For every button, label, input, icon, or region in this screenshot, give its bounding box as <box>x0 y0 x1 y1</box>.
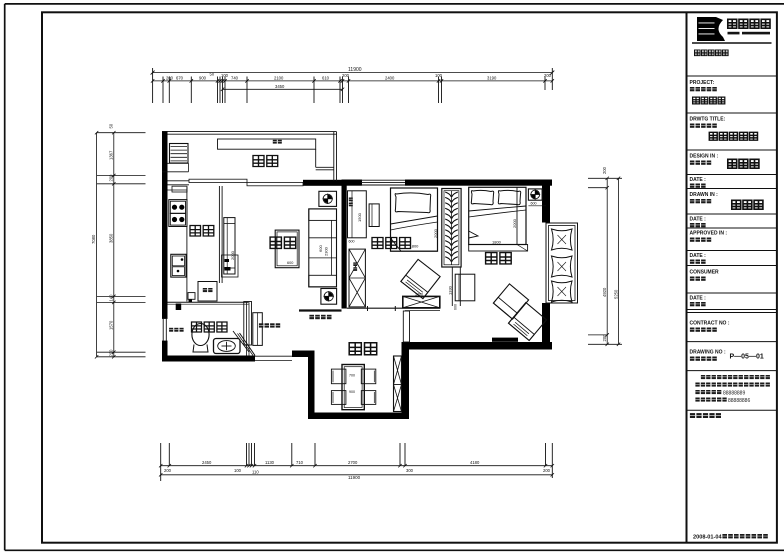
svg-text:100: 100 <box>221 73 229 78</box>
svg-text:610: 610 <box>322 75 330 80</box>
svg-text:2450: 2450 <box>202 460 212 465</box>
svg-text:7080: 7080 <box>91 234 96 244</box>
svg-text:DRWTG TITLE:: DRWTG TITLE: <box>690 117 726 123</box>
svg-text:PROJECT:: PROJECT: <box>690 80 715 86</box>
svg-text:88888889: 88888889 <box>723 390 745 396</box>
svg-text:200: 200 <box>602 334 607 342</box>
svg-text:110: 110 <box>252 470 259 475</box>
svg-text:11900: 11900 <box>348 475 361 480</box>
svg-text:1570: 1570 <box>108 320 113 330</box>
svg-text:140: 140 <box>108 294 113 302</box>
svg-text:600: 600 <box>349 240 355 244</box>
svg-text:200: 200 <box>108 174 113 182</box>
svg-text:1330: 1330 <box>447 285 452 295</box>
svg-text:100: 100 <box>435 73 443 78</box>
svg-text:1400: 1400 <box>415 292 423 296</box>
svg-text:1500: 1500 <box>357 212 362 222</box>
svg-text:670: 670 <box>176 75 184 80</box>
svg-text:5250: 5250 <box>614 289 619 299</box>
svg-text:3450: 3450 <box>275 84 285 89</box>
svg-text:P—05—01: P—05—01 <box>730 354 764 361</box>
svg-text:88888886: 88888886 <box>728 398 750 404</box>
svg-text:DATE :: DATE : <box>690 177 707 183</box>
svg-text:900: 900 <box>199 75 207 80</box>
svg-text:CONTRACT NO :: CONTRACT NO : <box>690 321 730 327</box>
svg-text:1130: 1130 <box>265 460 275 465</box>
svg-text:2000: 2000 <box>433 228 438 238</box>
svg-text:600: 600 <box>287 261 293 265</box>
svg-text:710: 710 <box>296 460 304 465</box>
svg-text:600: 600 <box>531 202 537 206</box>
svg-text:2700: 2700 <box>348 460 358 465</box>
svg-text:900: 900 <box>349 390 355 394</box>
svg-text:3190: 3190 <box>487 75 497 80</box>
svg-text:2400: 2400 <box>385 75 395 80</box>
svg-text:DRAWN IN :: DRAWN IN : <box>690 192 719 198</box>
svg-text:DRAWING NO :: DRAWING NO : <box>690 350 726 356</box>
svg-text:50: 50 <box>108 123 113 128</box>
svg-text:2300: 2300 <box>324 246 329 256</box>
svg-text:600: 600 <box>318 245 323 252</box>
svg-text:3850: 3850 <box>108 233 113 243</box>
svg-text:200: 200 <box>166 75 174 80</box>
svg-text:4180: 4180 <box>470 460 480 465</box>
svg-text:2000: 2000 <box>512 218 517 228</box>
svg-text:100: 100 <box>234 468 242 473</box>
svg-text:2008-01-04: 2008-01-04 <box>693 535 723 541</box>
svg-text:1367: 1367 <box>108 150 113 160</box>
svg-text:200: 200 <box>108 349 113 357</box>
svg-text:1800: 1800 <box>410 244 420 249</box>
svg-text:DATE :: DATE : <box>690 253 707 259</box>
svg-text:CONSUMER: CONSUMER <box>690 270 720 276</box>
svg-text:200: 200 <box>544 73 552 78</box>
svg-text:600: 600 <box>454 304 458 310</box>
svg-text:700: 700 <box>349 374 355 378</box>
svg-text:DATE :: DATE : <box>690 296 707 302</box>
svg-text:50: 50 <box>210 72 215 77</box>
svg-text:300: 300 <box>406 468 414 473</box>
svg-text:200: 200 <box>164 468 172 473</box>
svg-text:1800: 1800 <box>492 239 502 244</box>
svg-text:4920: 4920 <box>602 287 607 297</box>
svg-text:200: 200 <box>602 166 607 174</box>
svg-text:APPROVED IN :: APPROVED IN : <box>690 231 728 237</box>
svg-text:200: 200 <box>342 73 350 78</box>
svg-text:740: 740 <box>231 75 239 80</box>
svg-text:200: 200 <box>543 468 551 473</box>
svg-text:DATE :: DATE : <box>690 217 707 223</box>
svg-text:DESIGN IN :: DESIGN IN : <box>690 154 719 160</box>
svg-text:11900: 11900 <box>348 67 362 73</box>
svg-text:2100: 2100 <box>274 75 284 80</box>
